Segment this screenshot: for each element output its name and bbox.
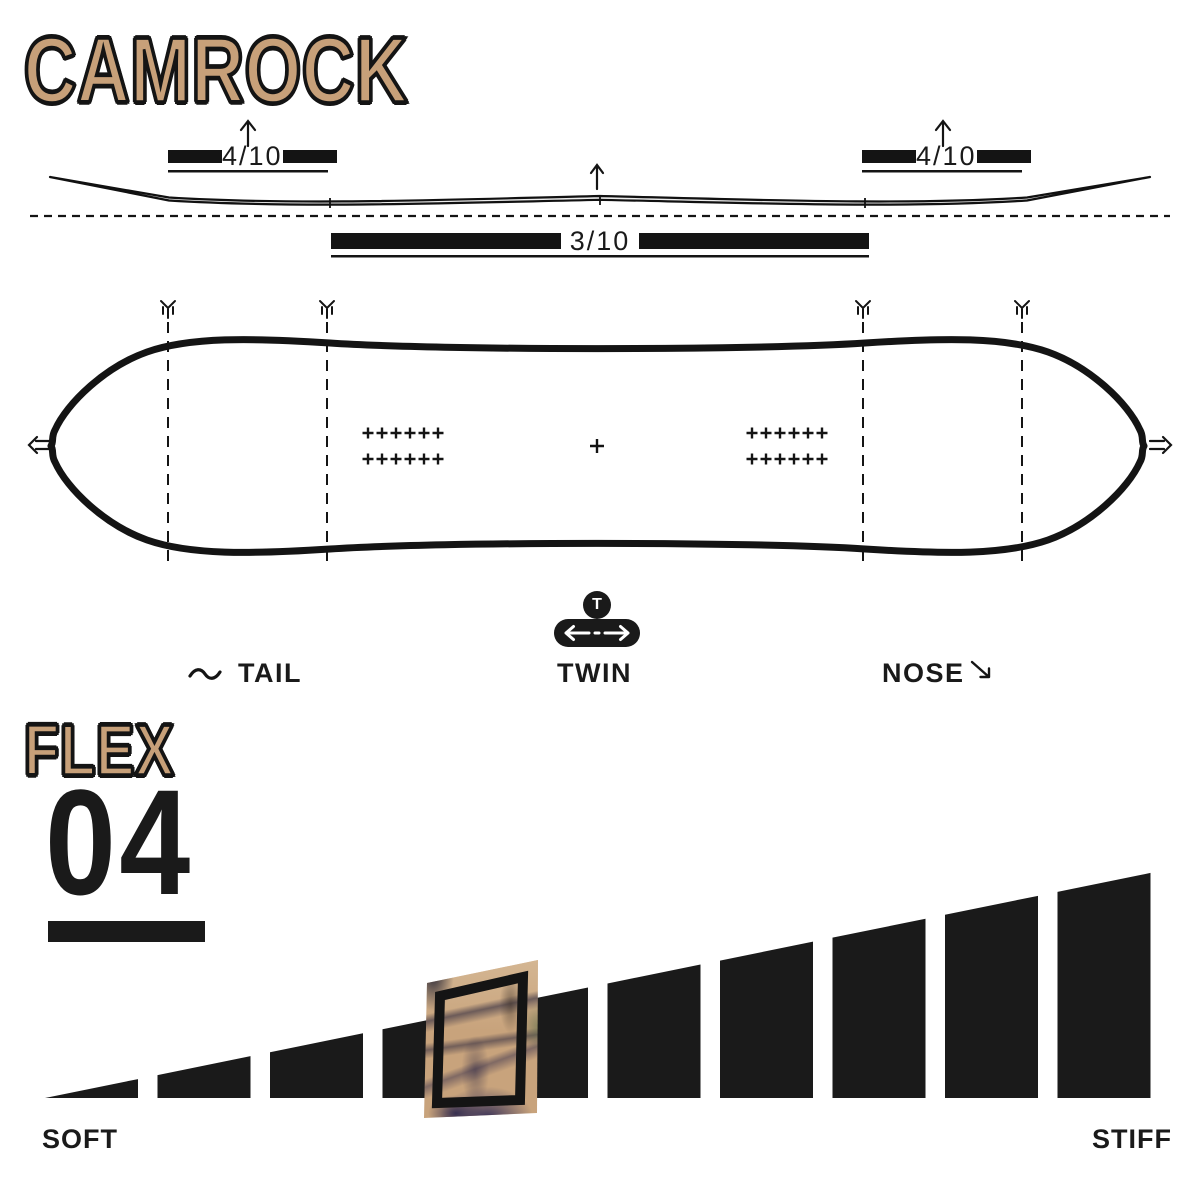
twin-badge-icon: T (583, 591, 611, 619)
tail-tip-rating-value: 4/10 (222, 150, 283, 163)
flex-marker-frame (424, 960, 538, 1118)
flex-bar (833, 919, 926, 1098)
up-arrow-icon (591, 165, 603, 189)
tail-edge-arrow-icon (29, 437, 50, 453)
twin-double-arrow (554, 619, 640, 647)
stiff-label: STIFF (1092, 1124, 1172, 1155)
camber-rating-value: 3/10 (561, 233, 640, 249)
soft-label: SOFT (42, 1124, 118, 1155)
flex-bar (270, 1033, 363, 1098)
flex-bar (45, 1079, 138, 1098)
tail-squiggle-icon (190, 670, 220, 679)
flex-bar (720, 942, 813, 1098)
label-bar (862, 150, 916, 163)
nose-arrow-icon (972, 662, 989, 677)
tail-label: TAIL (238, 658, 302, 689)
flex-value: 04 (45, 767, 194, 917)
nose-label: NOSE (882, 658, 965, 689)
tail-tip-rating: 4/10 (168, 148, 328, 164)
twin-label: TWIN (557, 658, 632, 689)
label-bar (639, 233, 869, 249)
flex-scale-bars (45, 873, 1151, 1098)
camber-rating: 3/10 (331, 233, 869, 249)
nose-edge-arrow-icon (1150, 437, 1171, 453)
nose-tip-rating-value: 4/10 (916, 150, 977, 163)
flex-value-underline (48, 921, 205, 942)
flex-bar (945, 896, 1038, 1098)
contact-point-marker-icons (161, 301, 1029, 318)
label-bar (977, 150, 1031, 163)
twin-arrow-pill-icon (554, 619, 640, 647)
label-bar (283, 150, 337, 163)
page-title: CAMROCK (24, 24, 408, 117)
label-bar (331, 233, 561, 249)
flex-bar (1058, 873, 1151, 1098)
nose-tip-rating: 4/10 (862, 148, 1022, 164)
camrock-spec-sheet: { "header": { "title": "CAMROCK" }, "pro… (0, 0, 1200, 1200)
flex-level-marker-tile (424, 960, 538, 1118)
label-bar (168, 150, 222, 163)
flex-bar (608, 965, 701, 1098)
flex-bar (158, 1056, 251, 1098)
